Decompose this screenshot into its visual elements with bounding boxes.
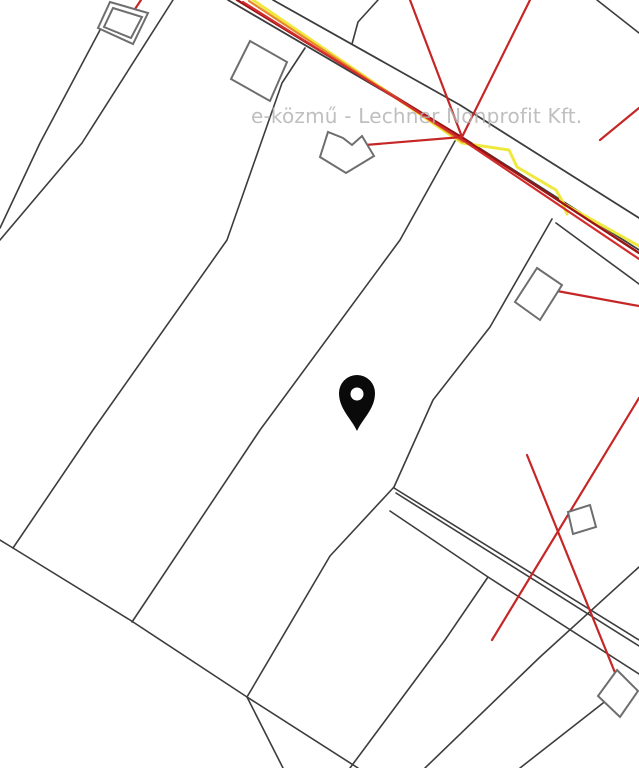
building-notched-by-road [320,132,374,173]
pin-body [339,375,375,431]
map-viewport[interactable]: e-közmű - Lechner Nonprofit Kft. [0,0,639,768]
gas-pipeline-yellow [253,0,639,246]
pin-hole [351,388,364,401]
location-pin[interactable] [339,375,375,431]
electric-service-lines-red [125,0,639,690]
electric-line-red-along-road [243,2,639,259]
parcel-boundary-lines [0,0,639,768]
building-right-mid [515,268,562,320]
utility-map-canvas[interactable] [0,0,639,768]
building-bottom-right [598,670,638,717]
buildings [98,2,638,717]
